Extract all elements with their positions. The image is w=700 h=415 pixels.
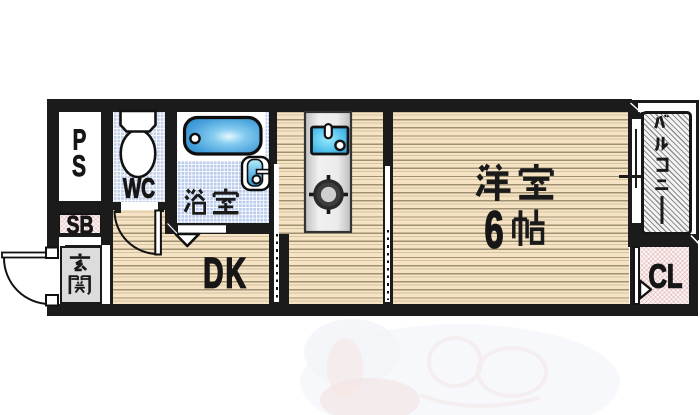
svg-text:CL: CL (649, 258, 683, 295)
svg-text:S: S (72, 150, 86, 182)
svg-text:WC: WC (123, 174, 155, 204)
svg-text:DK: DK (203, 249, 247, 297)
svg-text:6: 6 (484, 202, 503, 260)
svg-text:SB: SB (66, 211, 93, 239)
